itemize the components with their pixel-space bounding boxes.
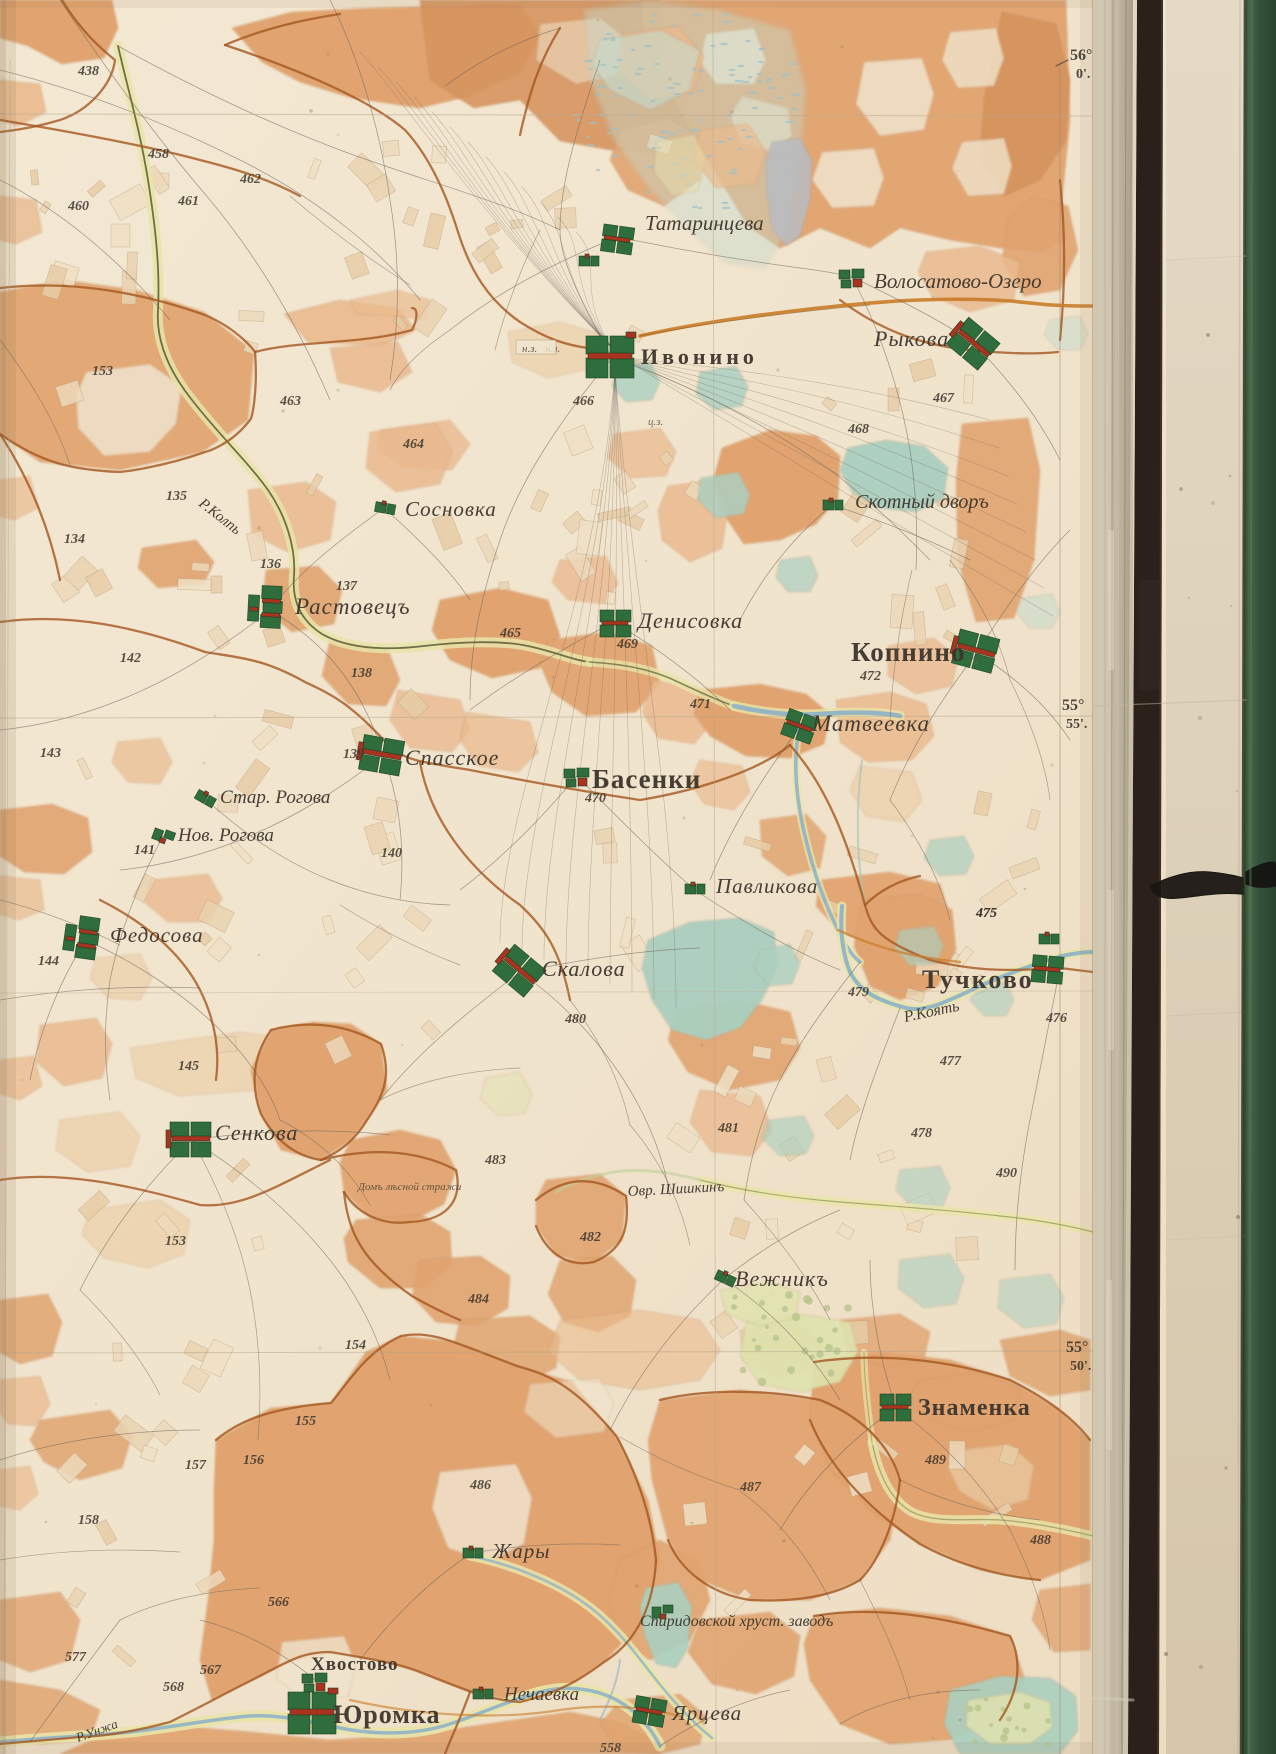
svg-text:480: 480 xyxy=(564,1012,586,1027)
svg-text:140: 140 xyxy=(381,846,402,861)
svg-text:56°: 56° xyxy=(1070,47,1092,64)
svg-text:476: 476 xyxy=(1045,1011,1067,1026)
svg-text:568: 568 xyxy=(163,1680,184,1695)
svg-text:ц.з.: ц.з. xyxy=(648,416,663,428)
svg-text:Юромка: Юромка xyxy=(333,1700,441,1729)
svg-text:567: 567 xyxy=(200,1663,222,1678)
svg-text:475: 475 xyxy=(975,906,997,921)
svg-text:467: 467 xyxy=(932,391,955,406)
svg-text:141: 141 xyxy=(134,843,155,858)
svg-text:Стар. Рогова: Стар. Рогова xyxy=(220,787,330,808)
svg-text:Денисовка: Денисовка xyxy=(636,608,743,633)
svg-text:156: 156 xyxy=(243,1453,264,1468)
svg-text:Сосновка: Сосновка xyxy=(405,497,497,521)
svg-text:142: 142 xyxy=(120,651,141,666)
svg-text:483: 483 xyxy=(484,1153,506,1168)
svg-text:Матвеевка: Матвеевка xyxy=(811,711,930,736)
svg-text:Спиридовской хруст. заводъ: Спиридовской хруст. заводъ xyxy=(640,1613,833,1630)
svg-text:153: 153 xyxy=(92,364,113,379)
svg-text:55°: 55° xyxy=(1062,697,1084,714)
svg-text:Тучково: Тучково xyxy=(922,965,1034,994)
svg-text:50'.: 50'. xyxy=(1070,1359,1091,1374)
svg-text:478: 478 xyxy=(910,1126,932,1141)
svg-text:139: 139 xyxy=(343,747,364,762)
svg-text:Копнино: Копнино xyxy=(851,637,965,667)
svg-text:158: 158 xyxy=(78,1513,99,1528)
svg-text:Растовецъ: Растовецъ xyxy=(294,594,411,619)
svg-text:462: 462 xyxy=(239,172,261,187)
svg-text:465: 465 xyxy=(499,626,521,641)
svg-text:135: 135 xyxy=(166,489,187,504)
svg-text:566: 566 xyxy=(268,1595,289,1610)
svg-text:477: 477 xyxy=(939,1054,962,1069)
svg-text:Татаринцева: Татаринцева xyxy=(645,211,764,235)
svg-text:Жары: Жары xyxy=(491,1539,550,1563)
svg-text:Федосова: Федосова xyxy=(110,923,204,947)
svg-text:466: 466 xyxy=(572,394,594,409)
svg-text:Скотный дворъ: Скотный дворъ xyxy=(855,491,989,513)
svg-text:0'.: 0'. xyxy=(1076,67,1090,82)
svg-text:Хвостово: Хвостово xyxy=(311,1654,399,1675)
svg-text:138: 138 xyxy=(351,666,372,681)
svg-text:489: 489 xyxy=(924,1453,946,1468)
svg-text:482: 482 xyxy=(579,1230,601,1245)
svg-text:Спасское: Спасское xyxy=(405,745,499,770)
svg-text:136: 136 xyxy=(260,557,281,572)
svg-text:461: 461 xyxy=(177,194,199,209)
svg-text:471: 471 xyxy=(689,697,711,712)
svg-text:486: 486 xyxy=(469,1478,491,1493)
svg-text:577: 577 xyxy=(65,1650,87,1665)
svg-text:470: 470 xyxy=(584,791,606,806)
svg-text:Скалова: Скалова xyxy=(542,956,626,981)
svg-text:134: 134 xyxy=(64,532,85,547)
svg-text:Знаменка: Знаменка xyxy=(918,1395,1031,1421)
svg-text:488: 488 xyxy=(1029,1533,1051,1548)
svg-text:Рыкова: Рыкова xyxy=(873,326,949,351)
svg-text:438: 438 xyxy=(77,64,99,79)
svg-text:469: 469 xyxy=(616,637,638,652)
svg-text:479: 479 xyxy=(847,985,869,1000)
svg-text:484: 484 xyxy=(467,1292,489,1307)
svg-text:481: 481 xyxy=(717,1121,739,1136)
svg-text:490: 490 xyxy=(995,1166,1017,1181)
svg-text:137: 137 xyxy=(336,579,358,594)
svg-text:460: 460 xyxy=(67,199,89,214)
svg-text:144: 144 xyxy=(38,954,59,969)
svg-text:Нечаевка: Нечаевка xyxy=(503,1684,579,1705)
svg-text:Павликова: Павликова xyxy=(715,874,818,898)
svg-text:157: 157 xyxy=(185,1458,207,1473)
svg-text:145: 145 xyxy=(178,1059,199,1074)
svg-text:464: 464 xyxy=(402,437,424,452)
svg-text:55'.: 55'. xyxy=(1066,717,1087,732)
svg-text:Вежникъ: Вежникъ xyxy=(735,1266,829,1291)
svg-text:Басенки: Басенки xyxy=(592,764,701,794)
svg-text:Ярцева: Ярцева xyxy=(671,1701,742,1725)
svg-text:Ивонино: Ивонино xyxy=(641,344,758,369)
svg-text:468: 468 xyxy=(847,422,869,437)
svg-text:Домъ лѣсной стражи: Домъ лѣсной стражи xyxy=(357,1181,462,1193)
svg-text:155: 155 xyxy=(295,1414,316,1429)
svg-text:463: 463 xyxy=(279,394,301,409)
svg-text:Нов. Рогова: Нов. Рогова xyxy=(177,825,274,846)
svg-text:154: 154 xyxy=(345,1338,366,1353)
svg-text:153: 153 xyxy=(165,1234,186,1249)
svg-text:458: 458 xyxy=(147,147,169,162)
svg-text:Сенкова: Сенкова xyxy=(215,1120,298,1145)
svg-text:472: 472 xyxy=(859,669,881,684)
svg-text:Волосатово-Озеро: Волосатово-Озеро xyxy=(874,269,1042,293)
svg-text:143: 143 xyxy=(40,746,61,761)
svg-text:55°: 55° xyxy=(1066,1339,1088,1356)
svg-text:н.з.: н.з. xyxy=(522,343,537,355)
